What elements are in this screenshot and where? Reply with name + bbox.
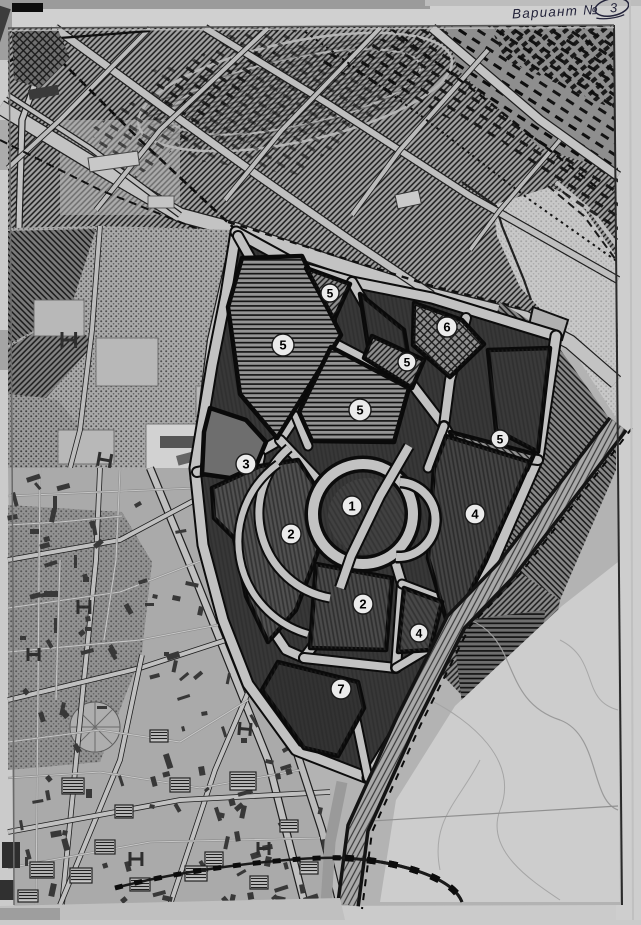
svg-text:4: 4: [471, 507, 479, 522]
svg-text:3: 3: [242, 457, 249, 472]
svg-text:5: 5: [404, 355, 411, 369]
svg-text:2: 2: [359, 597, 366, 612]
svg-text:5: 5: [327, 286, 334, 300]
svg-text:7: 7: [337, 682, 344, 697]
svg-text:5: 5: [279, 338, 286, 353]
svg-text:4: 4: [416, 626, 423, 640]
svg-text:6: 6: [443, 320, 450, 335]
svg-text:5: 5: [356, 403, 363, 418]
svg-text:5: 5: [497, 432, 504, 446]
svg-text:2: 2: [287, 527, 294, 542]
svg-text:1: 1: [348, 499, 355, 514]
